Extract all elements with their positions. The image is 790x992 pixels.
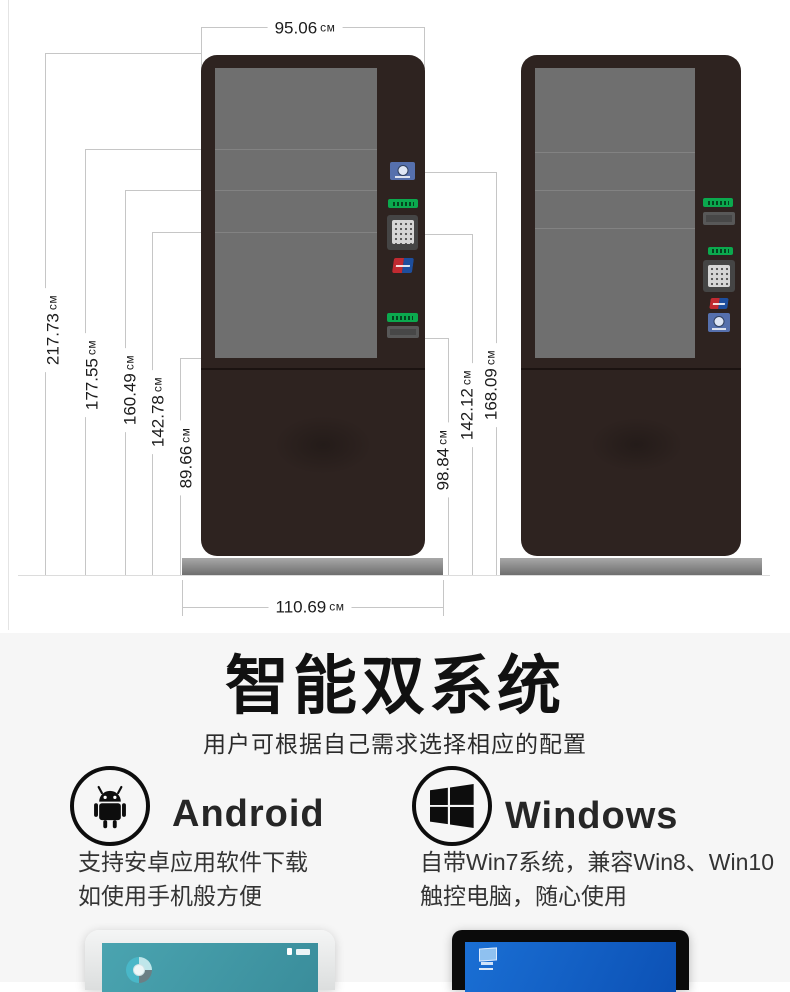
browser-icon-center	[133, 964, 145, 976]
kiosk-right	[521, 55, 741, 556]
kiosk-dimension-diagram: 95.06см 217.73см 177.55см 160.49см 142.7…	[0, 0, 790, 633]
dim-tick	[425, 172, 496, 173]
android-robot-glyph	[84, 780, 136, 832]
section-subtitle: 用户可根据自己需求选择相应的配置	[0, 725, 790, 759]
unionpay-wordmark	[712, 303, 725, 305]
dim-value: 160.49	[121, 373, 140, 425]
windows-desc-line-1: 自带Win7系统，兼容Win8、Win10	[420, 845, 774, 879]
dim-value: 217.73	[44, 313, 63, 365]
dim-value: 142.12	[458, 388, 477, 440]
dim-value: 98.84	[434, 448, 453, 491]
kiosk-left-base	[182, 558, 443, 575]
kiosk-left	[201, 55, 425, 556]
dim-unit: см	[320, 21, 335, 35]
ground-line	[18, 575, 770, 576]
slot-opening	[390, 329, 416, 335]
dim-unit: см	[85, 340, 99, 355]
label-text-marks	[708, 201, 729, 205]
cabinet-divider	[201, 368, 425, 370]
leader-line	[215, 232, 377, 233]
camera-lens-icon	[397, 165, 408, 176]
camera-module-icon	[708, 313, 730, 332]
dim-tick	[425, 338, 448, 339]
dim-unit: см	[436, 430, 450, 445]
receipt-slot	[387, 326, 419, 338]
card-entry-green-label	[388, 199, 418, 208]
receipt-slot	[703, 212, 735, 225]
dim-unit: см	[460, 370, 474, 385]
unionpay-wordmark	[396, 265, 410, 267]
keypad-keys	[392, 220, 414, 244]
dim-extension-line	[443, 580, 444, 616]
dim-tick	[152, 232, 201, 233]
dim-extension-line	[182, 580, 183, 616]
computer-icon-base	[481, 962, 493, 965]
dual-system-section: 智能双系统 用户可根据自己需求选择相应的配置 Android 支持安卓应用软件下…	[0, 633, 790, 982]
unionpay-logo-icon	[392, 258, 414, 273]
dim-tick	[85, 149, 201, 150]
windows-desktop-screen	[465, 942, 676, 992]
computer-icon-label-mark	[479, 968, 493, 970]
browser-app-icon	[126, 957, 152, 983]
leader-line	[535, 228, 695, 229]
label-text-marks	[393, 202, 414, 206]
dim-extension-line	[424, 27, 425, 69]
android-tablet-preview	[85, 930, 335, 990]
kiosk-right-base	[500, 558, 762, 575]
leader-line	[535, 190, 695, 191]
android-statusbar	[287, 948, 310, 955]
dim-label-height-2: 177.55см	[82, 333, 103, 417]
brand-emboss	[589, 417, 684, 472]
pin-keypad-icon	[703, 260, 735, 292]
keypad-keys	[708, 265, 730, 287]
windows-logo-glyph	[430, 784, 474, 828]
dim-label-height-3: 160.49см	[120, 348, 141, 432]
clock-indicator	[296, 949, 310, 955]
unionpay-logo-icon	[709, 298, 729, 309]
location-icon	[287, 948, 292, 955]
computer-icon-screen	[479, 947, 497, 961]
dim-value: 177.55	[83, 358, 102, 410]
dim-tick	[125, 190, 201, 191]
dim-unit: см	[484, 350, 498, 365]
leader-line	[215, 190, 377, 191]
dim-label-height-1: 217.73см	[43, 288, 64, 372]
dim-unit: см	[46, 295, 60, 310]
camera-module-icon	[390, 162, 415, 180]
dim-value: 168.09	[482, 368, 501, 420]
module-caption-mark	[712, 328, 725, 330]
cabinet-divider	[521, 368, 741, 370]
android-description: 支持安卓应用软件下载 如使用手机般方便	[78, 845, 308, 913]
dim-label-mid-3: 168.09см	[481, 343, 502, 427]
computer-desktop-icon	[479, 948, 499, 974]
pin-keypad-icon	[387, 215, 418, 250]
windows-desc-line-2: 触控电脑，随心使用	[420, 879, 774, 913]
dim-unit: см	[151, 377, 165, 392]
dim-label-height-4: 142.78см	[148, 370, 169, 454]
dim-value: 110.69	[276, 598, 327, 617]
label-text-marks	[712, 249, 730, 253]
windows-monitor-preview	[452, 930, 689, 990]
kiosk-left-screen	[215, 68, 377, 358]
dim-unit: см	[123, 355, 137, 370]
kiosk-right-screen	[535, 68, 695, 358]
dim-unit: см	[329, 600, 344, 614]
label-text-marks	[392, 316, 414, 320]
dim-value: 95.06	[275, 19, 318, 38]
brand-emboss	[273, 415, 373, 475]
dim-tick	[45, 53, 201, 54]
module-caption-mark	[395, 176, 410, 178]
dim-label-top-width: 95.06см	[268, 18, 343, 39]
dim-unit: см	[179, 428, 193, 443]
dim-label-bottom-width: 110.69см	[269, 597, 352, 618]
windows-description: 自带Win7系统，兼容Win8、Win10 触控电脑，随心使用	[420, 845, 774, 913]
page-border-line	[8, 0, 9, 630]
android-robot-icon	[70, 766, 150, 846]
section-title: 智能双系统	[0, 635, 790, 727]
windows-logo-icon	[412, 766, 492, 846]
dim-value: 142.78	[149, 395, 168, 447]
camera-lens-icon	[714, 316, 725, 327]
android-desc-line-2: 如使用手机般方便	[78, 879, 308, 913]
leader-line	[215, 149, 377, 150]
dim-tick	[180, 358, 201, 359]
windows-name: Windows	[505, 795, 678, 838]
android-name: Android	[172, 793, 325, 836]
dim-value: 89.66	[177, 446, 196, 489]
receipt-green-label	[387, 313, 418, 322]
card-entry-green-label	[708, 247, 733, 255]
dim-label-mid-1: 98.84см	[433, 423, 454, 498]
dim-label-mid-2: 142.12см	[457, 363, 478, 447]
dim-label-height-5: 89.66см	[176, 421, 197, 496]
dim-tick	[425, 234, 472, 235]
android-desktop-screen	[102, 943, 318, 992]
slot-opening	[706, 215, 732, 222]
receipt-green-label	[703, 198, 733, 207]
android-desc-line-1: 支持安卓应用软件下载	[78, 845, 308, 879]
leader-line	[535, 152, 695, 153]
